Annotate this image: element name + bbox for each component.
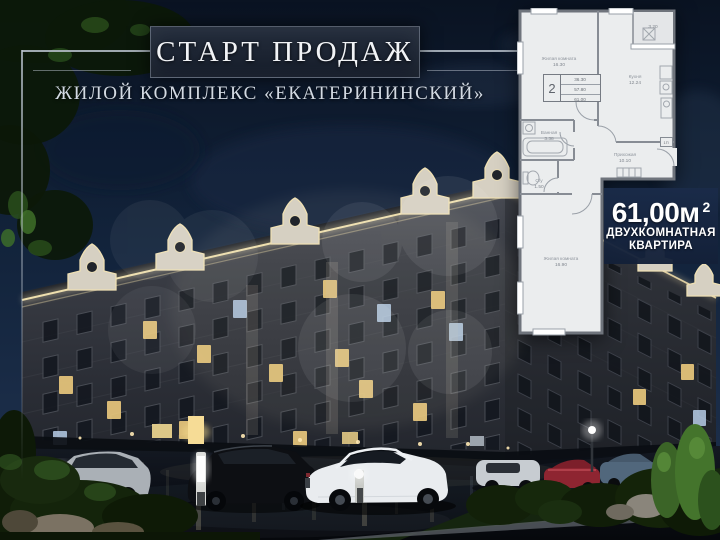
room-label-wc: С/у 1.50 <box>529 178 548 189</box>
complex-subtitle: ЖИЛОЙ КОМПЛЕКС «ЕКАТЕРИНИНСКИЙ» <box>20 83 520 105</box>
listing-ad-image[interactable]: СТАРТ ПРОДАЖ ЖИЛОЙ КОМПЛЕКС «ЕКАТЕРИНИНС… <box>0 0 720 540</box>
stamp-total-area: 61.00 <box>575 97 587 102</box>
room-label-living-top: Жилая комната 16.30 <box>537 56 580 67</box>
page-title: СТАРТ ПРОДАЖ <box>156 36 414 69</box>
title-line-right <box>418 50 518 52</box>
stamp-living-area: 36.30 <box>575 77 587 82</box>
stamp-room-count: 2 <box>544 75 561 101</box>
entry-door-tag: 1П <box>660 137 673 147</box>
room-label-bathroom: Ванная 3.38 <box>535 130 564 141</box>
title-line-left <box>22 50 150 52</box>
superscript-2: 2 <box>702 193 710 221</box>
plan-stamp: 2 36.30 57.80 61.00 <box>543 74 601 102</box>
floor-plan: Жилая комната 16.30 Кухня 12.24 Ванная 3… <box>517 8 677 336</box>
room-label-living-bottom: Жилая комната 16.90 <box>539 256 582 267</box>
room-label-hallway: Прихожая 10.10 <box>607 152 643 163</box>
title-line-left-2 <box>33 70 131 71</box>
title-banner: СТАРТ ПРОДАЖ <box>150 26 420 78</box>
room-label-kitchen: Кухня 12.24 <box>617 74 653 85</box>
apartment-type-line2: КВАРТИРА <box>629 240 693 253</box>
room-label-balcony: 3.20 <box>642 24 664 29</box>
title-line-right-2 <box>427 70 519 71</box>
apartment-type-line1: ДВУХКОМНАТНАЯ <box>606 227 716 240</box>
stamp-floor-area: 57.80 <box>575 87 587 92</box>
left-frame-line <box>21 50 23 480</box>
offer-badge: 61,00м 2 ДВУХКОМНАТНАЯ КВАРТИРА <box>604 188 718 264</box>
apartment-area: 61,00м 2 <box>612 199 711 227</box>
